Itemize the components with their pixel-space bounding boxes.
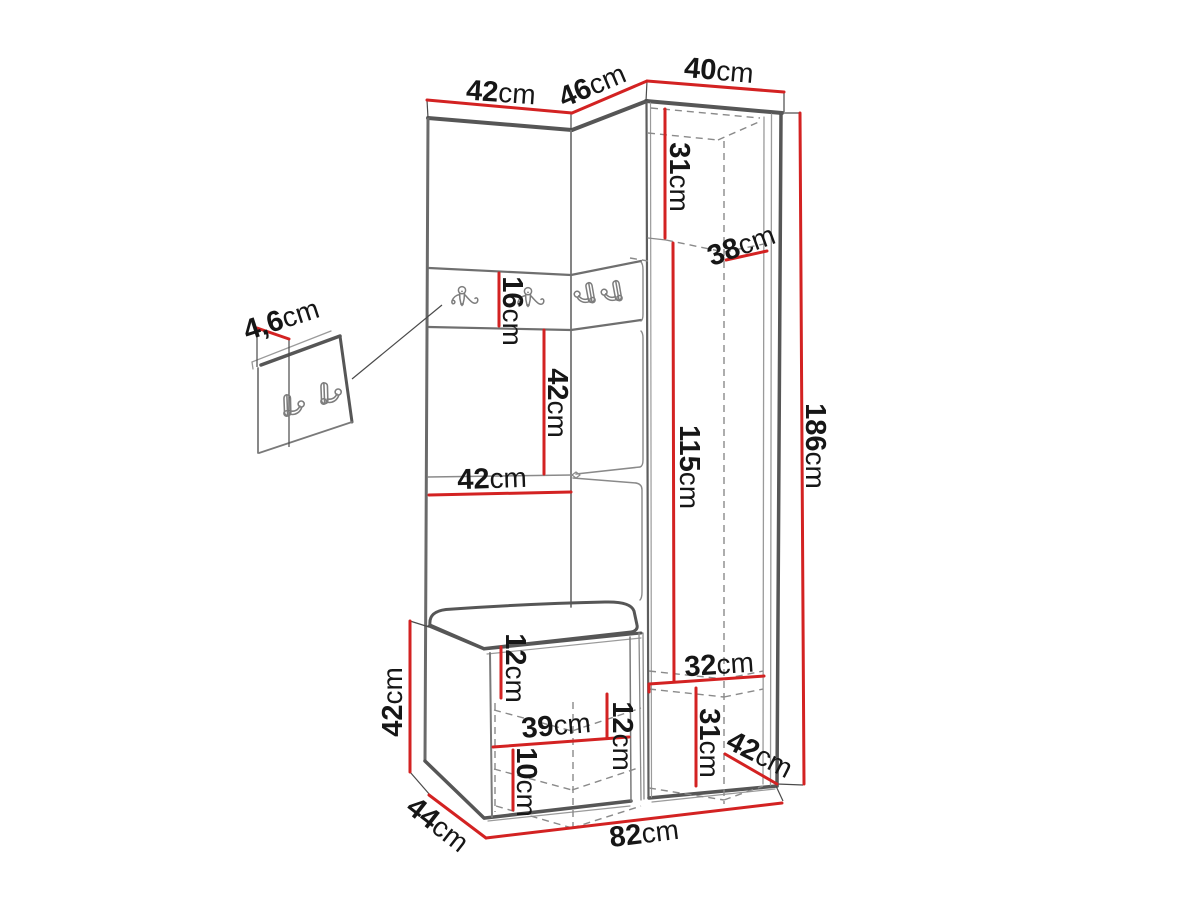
svg-text:40cm: 40cm — [683, 52, 755, 90]
svg-text:42cm: 42cm — [457, 462, 528, 496]
svg-text:10cm: 10cm — [510, 747, 542, 817]
svg-text:31cm: 31cm — [693, 708, 725, 778]
svg-text:186cm: 186cm — [799, 403, 831, 489]
svg-text:32cm: 32cm — [683, 647, 755, 684]
svg-text:42cm: 42cm — [465, 75, 537, 112]
svg-text:12cm: 12cm — [606, 701, 638, 771]
svg-text:115cm: 115cm — [673, 425, 705, 509]
svg-text:42cm: 42cm — [377, 667, 409, 737]
svg-text:42cm: 42cm — [541, 368, 573, 438]
svg-text:16cm: 16cm — [496, 276, 528, 346]
svg-text:31cm: 31cm — [663, 142, 695, 212]
svg-text:12cm: 12cm — [499, 633, 531, 703]
